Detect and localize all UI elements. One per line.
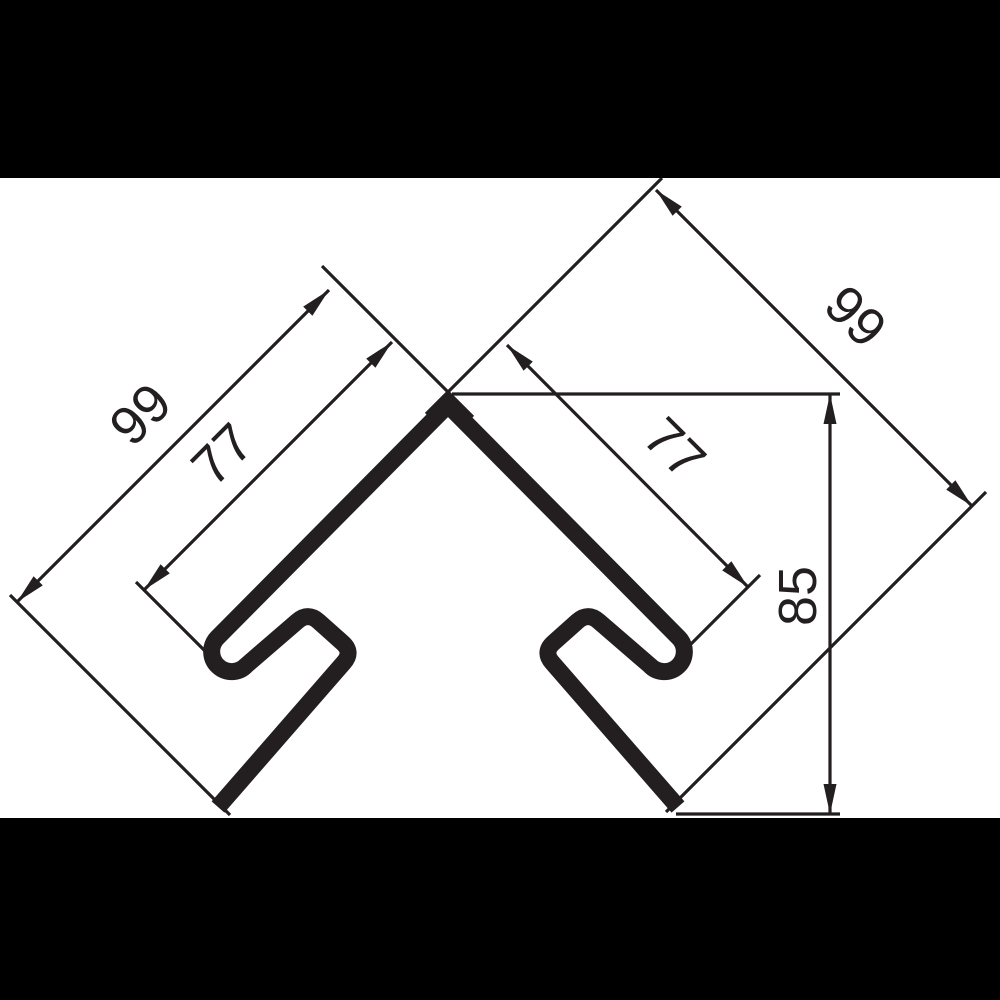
profile-outline [212, 405, 685, 807]
dimension-line-77-left [144, 342, 392, 590]
extension-line-right-hook [676, 575, 760, 659]
dim-label-99-left: 99 [98, 372, 183, 457]
letterbox-bottom-bar [0, 818, 1000, 1000]
extension-line-left-hook [136, 582, 222, 668]
screenshot-stage: 99 77 99 77 85 [0, 0, 1000, 1000]
dimension-line-77-right [507, 345, 748, 587]
extension-line-apex-left [322, 266, 473, 417]
extension-line-right-leg-end [666, 492, 986, 812]
extension-line-left-leg-end [10, 595, 230, 815]
arrowhead-85-top [824, 394, 837, 424]
letterbox-top-bar [0, 0, 1000, 178]
arrowhead-85-bottom [824, 784, 837, 814]
dim-label-99-right: 99 [813, 274, 898, 359]
dim-label-77-right: 77 [632, 406, 717, 491]
extension-line-apex-right [426, 178, 662, 414]
dim-label-85-height: 85 [768, 566, 828, 626]
dimension-line-99-left [17, 290, 329, 602]
